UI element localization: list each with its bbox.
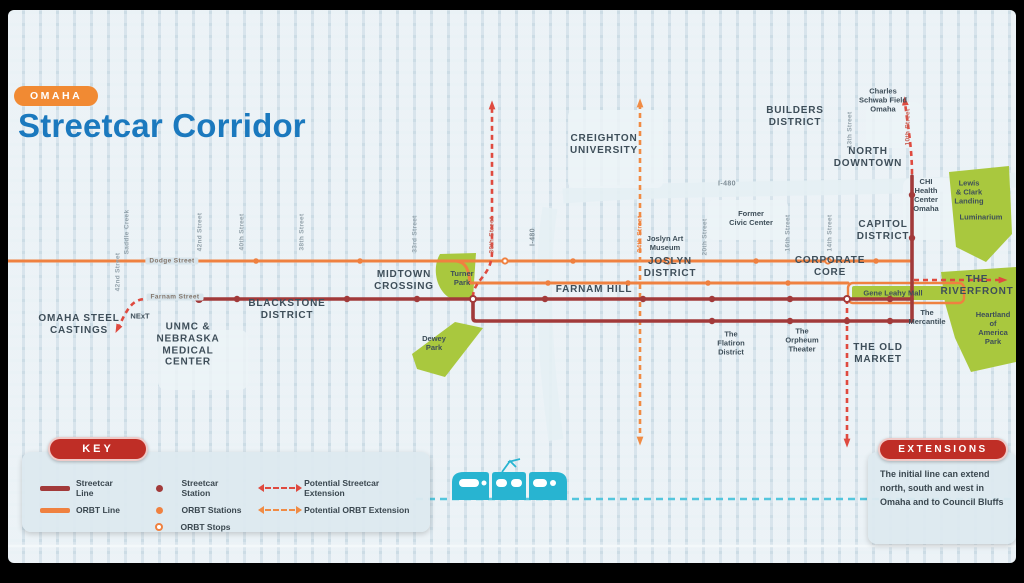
legend-item-label: Streetcar Line: [76, 478, 131, 498]
legend-ring-swatch: [155, 523, 163, 531]
legend-item-label: Streetcar Station: [181, 478, 248, 498]
legend-item-label: ORBT Stations: [181, 505, 241, 515]
extensions-panel: The initial line can extend north, south…: [868, 452, 1016, 544]
legend-item-orbt-line: ORBT Line: [40, 505, 131, 515]
streetcar-illustration: [452, 459, 567, 500]
legend-stations-column: Streetcar StationORBT StationsORBT Stops: [145, 478, 248, 532]
legend-item-orbt-stops: ORBT Stops: [145, 522, 248, 532]
key-badge: KEY: [48, 437, 148, 461]
legend-dot-swatch: [156, 485, 163, 492]
legend-item-label: ORBT Stops: [180, 522, 230, 532]
legend-dot-swatch: [156, 507, 163, 514]
extensions-badge: EXTENSIONS: [878, 438, 1008, 461]
legend-lines-column: Streetcar LineORBT Line: [40, 478, 131, 532]
omaha-badge: OMAHA: [14, 86, 98, 106]
lewis-clark-landing-area: [949, 166, 1012, 262]
streetcar-extension-30th-north: [473, 106, 492, 297]
civic-blob: [708, 200, 788, 240]
legend-item-orbt-stations: ORBT Stations: [145, 505, 248, 515]
page-title: Streetcar Corridor: [18, 107, 306, 145]
title-block: OMAHA Streetcar Corridor: [14, 86, 306, 145]
legend-item-potential-orbt-extension: Potential ORBT Extension: [262, 505, 420, 515]
legend-item-streetcar-station: Streetcar Station: [145, 478, 248, 498]
legend-line-swatch: [40, 486, 70, 491]
legend-item-potential-streetcar-extension: Potential Streetcar Extension: [262, 478, 420, 498]
i480-highway-northsouth: [544, 208, 556, 440]
legend-arrow-swatch: [265, 509, 295, 511]
creighton-campus-blob: [568, 110, 663, 188]
legend-extensions-column: Potential Streetcar ExtensionPotential O…: [262, 478, 420, 532]
legend-panel: Streetcar LineORBT Line Streetcar Statio…: [22, 452, 430, 532]
legend-item-label: Potential ORBT Extension: [304, 505, 409, 515]
legend-item-streetcar-line: Streetcar Line: [40, 478, 131, 498]
legend-arrow-swatch: [265, 487, 295, 489]
unmc-blob: [158, 330, 248, 390]
legend-line-swatch: [40, 508, 70, 513]
legend-item-label: ORBT Line: [76, 505, 120, 515]
omaha-streetcar-map: CREIGHTON UNIVERSITYBUILDERS DISTRICTNOR…: [8, 10, 1016, 563]
legend-item-label: Potential Streetcar Extension: [304, 478, 420, 498]
streetcar-extension-west: [118, 299, 197, 328]
dewey-park-area: [412, 322, 483, 377]
ballpark-blob: [866, 102, 924, 148]
